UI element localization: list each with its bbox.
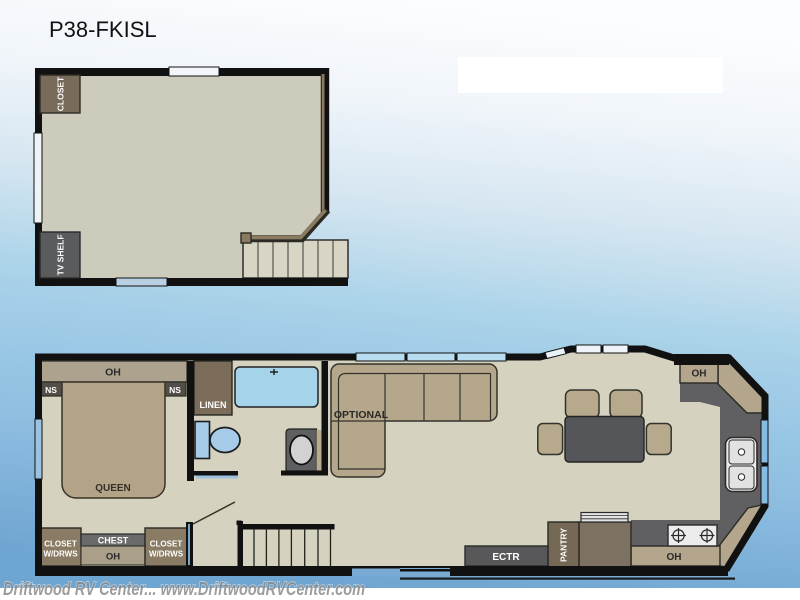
svg-text:Driftwood RV Center... www.Dri: Driftwood RV Center... www.DriftwoodRVCe… (3, 579, 365, 599)
svg-text:PANTRY: PANTRY (558, 528, 568, 562)
svg-text:OH: OH (105, 367, 121, 379)
svg-text:CLOSET: CLOSET (44, 540, 77, 549)
svg-text:W/DRWS: W/DRWS (149, 550, 184, 559)
svg-text:OPTIONAL: OPTIONAL (334, 409, 389, 421)
svg-text:OH: OH (692, 369, 707, 380)
svg-text:CHEST: CHEST (98, 536, 129, 546)
svg-text:NS: NS (169, 385, 181, 395)
svg-text:W/DRWS: W/DRWS (43, 550, 78, 559)
svg-text:CLOSET: CLOSET (55, 76, 65, 111)
svg-text:NS: NS (45, 385, 57, 395)
svg-text:OH: OH (667, 552, 682, 563)
svg-text:ECTR: ECTR (492, 552, 520, 563)
svg-text:LINEN: LINEN (200, 400, 227, 410)
svg-text:OH: OH (106, 552, 120, 563)
svg-text:QUEEN: QUEEN (95, 483, 131, 494)
svg-text:CLOSET: CLOSET (150, 540, 183, 549)
svg-text:TV SHELF: TV SHELF (55, 234, 65, 275)
svg-text:P38-FKISL: P38-FKISL (49, 17, 157, 42)
